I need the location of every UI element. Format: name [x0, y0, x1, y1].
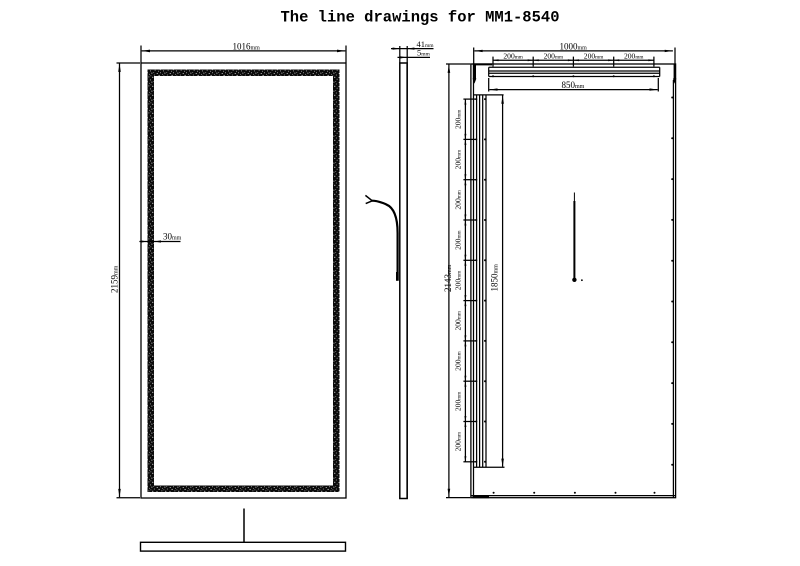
svg-text:200mm: 200mm [454, 351, 463, 370]
svg-text:200mm: 200mm [454, 110, 463, 129]
svg-text:1850mm: 1850mm [490, 264, 500, 292]
svg-text:200mm: 200mm [624, 51, 643, 60]
svg-text:2143mm: 2143mm [443, 264, 453, 292]
svg-text:30mm: 30mm [163, 232, 182, 242]
svg-text:2159mm: 2159mm [110, 265, 120, 293]
svg-text:850mm: 850mm [562, 80, 585, 90]
svg-text:1016mm: 1016mm [233, 41, 261, 51]
svg-text:200mm: 200mm [584, 51, 603, 60]
svg-text:200mm: 200mm [454, 432, 463, 451]
svg-text:200mm: 200mm [454, 150, 463, 169]
svg-text:200mm: 200mm [454, 190, 463, 209]
svg-text:200mm: 200mm [454, 392, 463, 411]
svg-text:200mm: 200mm [454, 271, 463, 290]
svg-text:200mm: 200mm [503, 51, 522, 60]
svg-text:200mm: 200mm [454, 230, 463, 249]
svg-text:1000mm: 1000mm [560, 41, 588, 51]
svg-text:The line drawings for MM1-8540: The line drawings for MM1-8540 [280, 9, 559, 27]
svg-text:200mm: 200mm [454, 311, 463, 330]
svg-text:200mm: 200mm [544, 51, 563, 60]
